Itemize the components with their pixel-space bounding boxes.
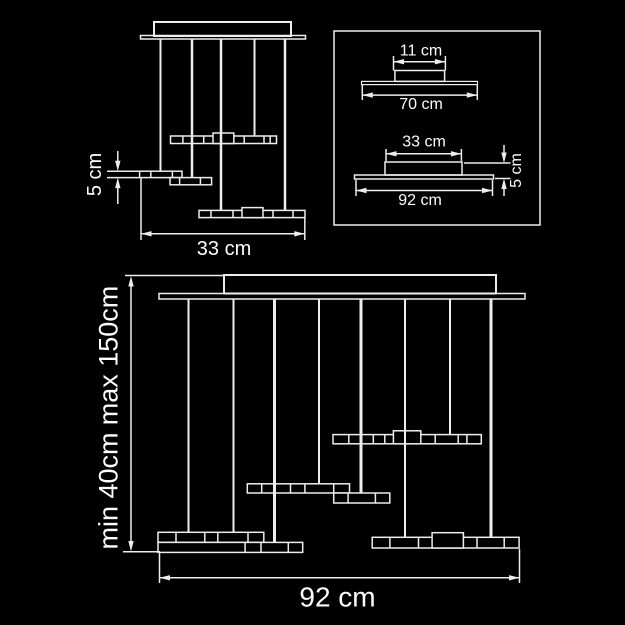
svg-text:33 cm: 33 cm [402, 134, 446, 151]
svg-text:92 cm: 92 cm [398, 192, 442, 209]
svg-text:92 cm: 92 cm [299, 582, 375, 613]
svg-text:33 cm: 33 cm [197, 238, 251, 260]
svg-text:5 cm: 5 cm [508, 153, 525, 188]
svg-text:5 cm: 5 cm [84, 153, 106, 196]
svg-text:70 cm: 70 cm [399, 96, 443, 113]
svg-text:min 40cm: min 40cm [94, 432, 124, 549]
svg-text:11 cm: 11 cm [400, 43, 442, 60]
svg-text:max 150cm: max 150cm [94, 286, 124, 426]
